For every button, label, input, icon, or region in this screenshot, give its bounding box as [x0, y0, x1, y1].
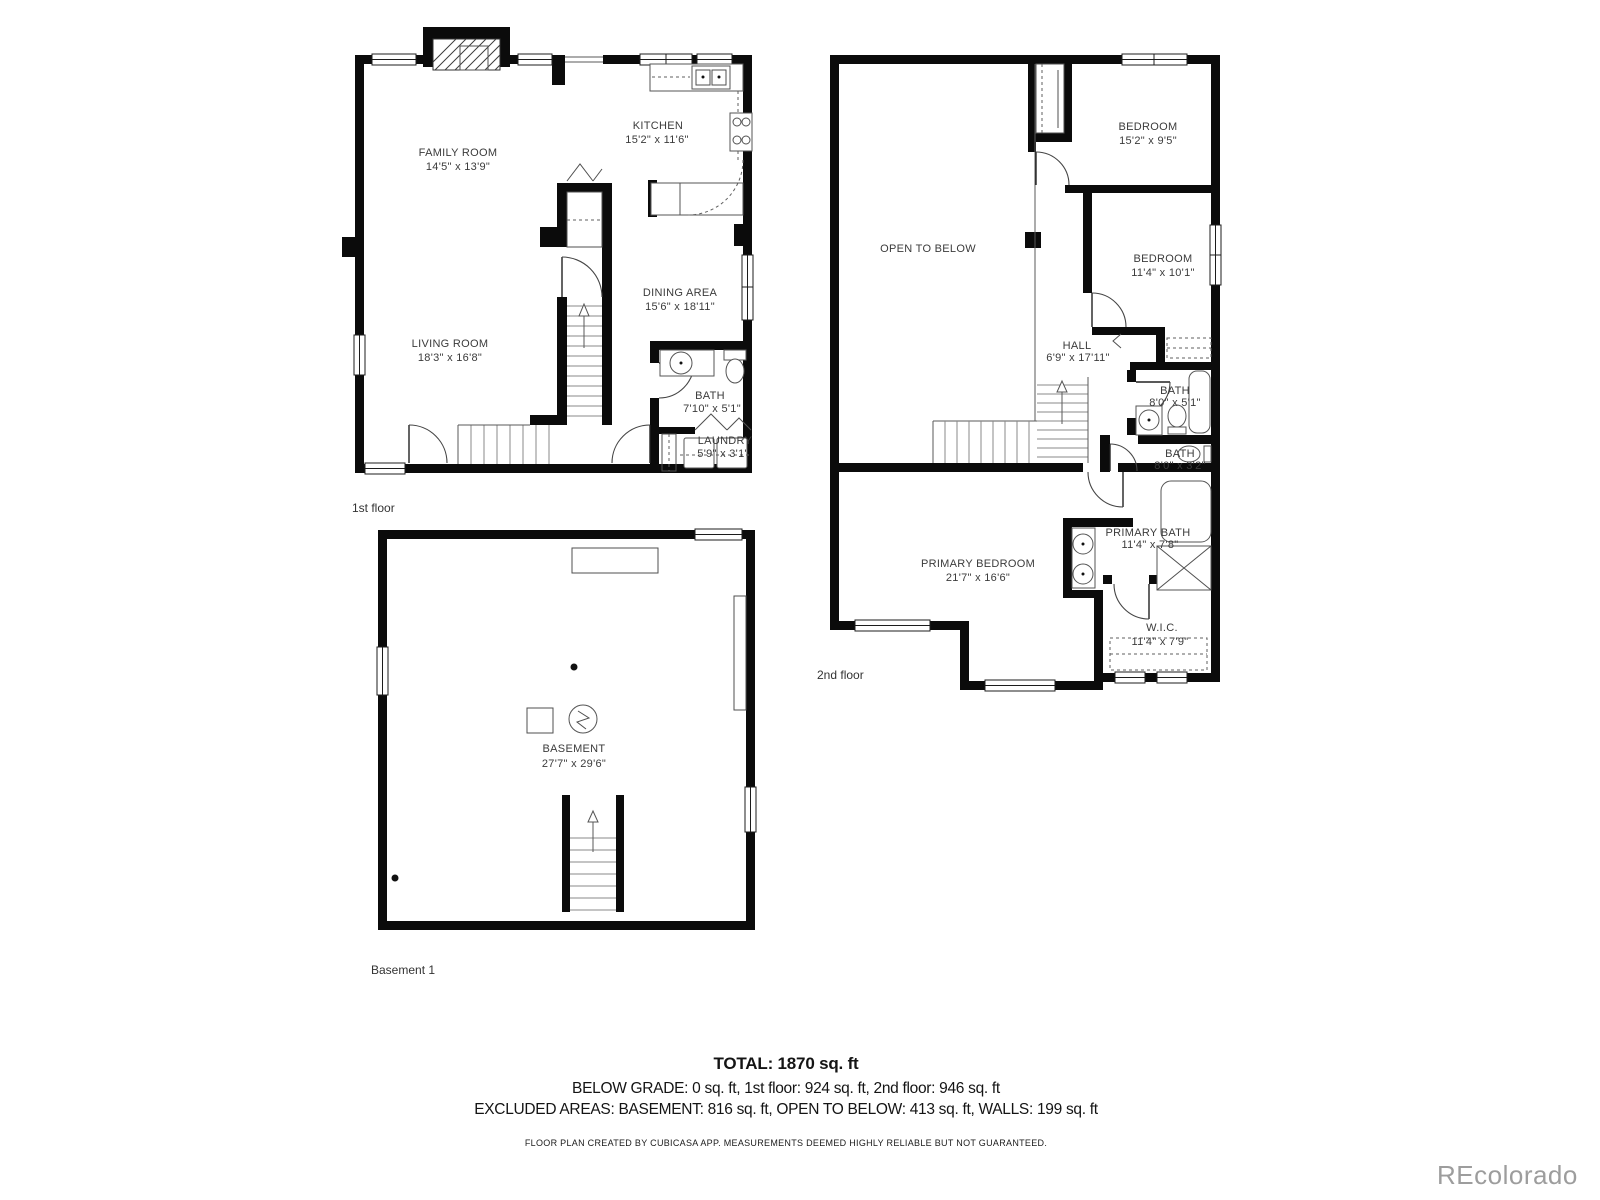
room-dims: 18'3" x 16'8": [418, 352, 482, 364]
linen-closet: [1167, 338, 1211, 358]
second-floor-plan: OPEN TO BELOW BEDROOM 15'2" x 9'5" BEDRO…: [805, 40, 1230, 700]
room-dims: 6'9" x 17'11": [1046, 352, 1109, 364]
furnace-icon: [527, 708, 553, 733]
room-label: BEDROOM: [1134, 253, 1193, 265]
room-dims: 8'0" x 3'2": [1154, 460, 1205, 472]
staircase: [458, 304, 602, 464]
second-floor-tag: 2nd floor: [817, 668, 864, 682]
room-dims: 11'4" x 7'8": [1122, 539, 1179, 551]
room-dims: 15'6" x 18'11": [645, 301, 715, 313]
open-to-below-railing: [933, 64, 1037, 463]
excluded-areas: EXCLUDED AREAS: BASEMENT: 816 sq. ft, OP…: [0, 1099, 1572, 1120]
room-label: BATH: [1160, 385, 1190, 397]
room-label: LIVING ROOM: [412, 338, 489, 350]
room-dims: 21'7" x 16'6": [946, 572, 1010, 584]
room-label: OPEN TO BELOW: [880, 243, 976, 255]
room-label: PRIMARY BEDROOM: [921, 558, 1035, 570]
room-dims: 27'7" x 29'6": [542, 758, 606, 770]
toilet-icon: [726, 359, 744, 383]
room-dims: 5'9" x 3'1": [697, 448, 748, 460]
room-label: LAUNDRY: [698, 435, 753, 447]
kitchen-sink-icon: [692, 66, 730, 89]
total-area: TOTAL: 1870 sq. ft: [0, 1054, 1572, 1074]
room-dims: 7'10" x 5'1": [683, 403, 741, 415]
first-floor-tag: 1st floor: [352, 501, 395, 515]
room-dims: 11'4" x 10'1": [1131, 267, 1194, 279]
first-floor-plan: FAMILY ROOM 14'5" x 13'9" KITCHEN 15'2" …: [340, 10, 760, 515]
recolorado-watermark: REcolorado: [1437, 1160, 1578, 1191]
room-dims: 14'5" x 13'9": [426, 161, 490, 173]
second-floor-windows: [855, 54, 1221, 691]
room-dims: 11'4" x 7'9": [1132, 636, 1189, 648]
area-summary: TOTAL: 1870 sq. ft BELOW GRADE: 0 sq. ft…: [0, 1054, 1572, 1120]
room-label: BATH: [695, 390, 725, 402]
room-label: FAMILY ROOM: [419, 147, 498, 159]
second-floor-walls: [830, 55, 1220, 690]
room-dims: 8'0" x 5'1": [1149, 397, 1200, 409]
room-label: PRIMARY BATH: [1106, 527, 1191, 539]
room-label: DINING AREA: [643, 287, 718, 299]
water-heater-icon: [569, 705, 597, 733]
disclaimer: FLOOR PLAN CREATED BY CUBICASA APP. MEAS…: [0, 1138, 1572, 1148]
basement-tag: Basement 1: [371, 963, 435, 977]
basement-staircase: [570, 811, 616, 910]
first-floor-labels: FAMILY ROOM 14'5" x 13'9" KITCHEN 15'2" …: [412, 120, 753, 460]
closet-interior: [567, 164, 602, 247]
room-dims: 15'2" x 9'5": [1119, 135, 1177, 147]
basement-labels: BASEMENT 27'7" x 29'6": [542, 743, 606, 770]
bath-fixtures: [660, 350, 746, 383]
room-label: BATH: [1165, 448, 1195, 460]
room-label: BEDROOM: [1119, 121, 1178, 133]
room-label: BASEMENT: [543, 743, 606, 755]
room-dims: 15'2" x 11'6": [625, 134, 688, 146]
basement-plan: BASEMENT 27'7" x 29'6": [365, 520, 765, 940]
grade-areas: BELOW GRADE: 0 sq. ft, 1st floor: 924 sq…: [0, 1078, 1572, 1099]
stair-arrow-icon: [1057, 381, 1067, 392]
room-label: HALL: [1063, 340, 1092, 352]
upper-staircase: [945, 377, 1088, 463]
bedroom-closet: [1036, 64, 1064, 133]
basement-walls: [378, 530, 755, 930]
basement-windows: [377, 529, 756, 832]
stair-arrow-icon: [588, 811, 598, 822]
room-label: KITCHEN: [633, 120, 683, 132]
toilet-tank-icon: [1168, 427, 1186, 434]
room-label: W.I.C.: [1146, 622, 1178, 634]
